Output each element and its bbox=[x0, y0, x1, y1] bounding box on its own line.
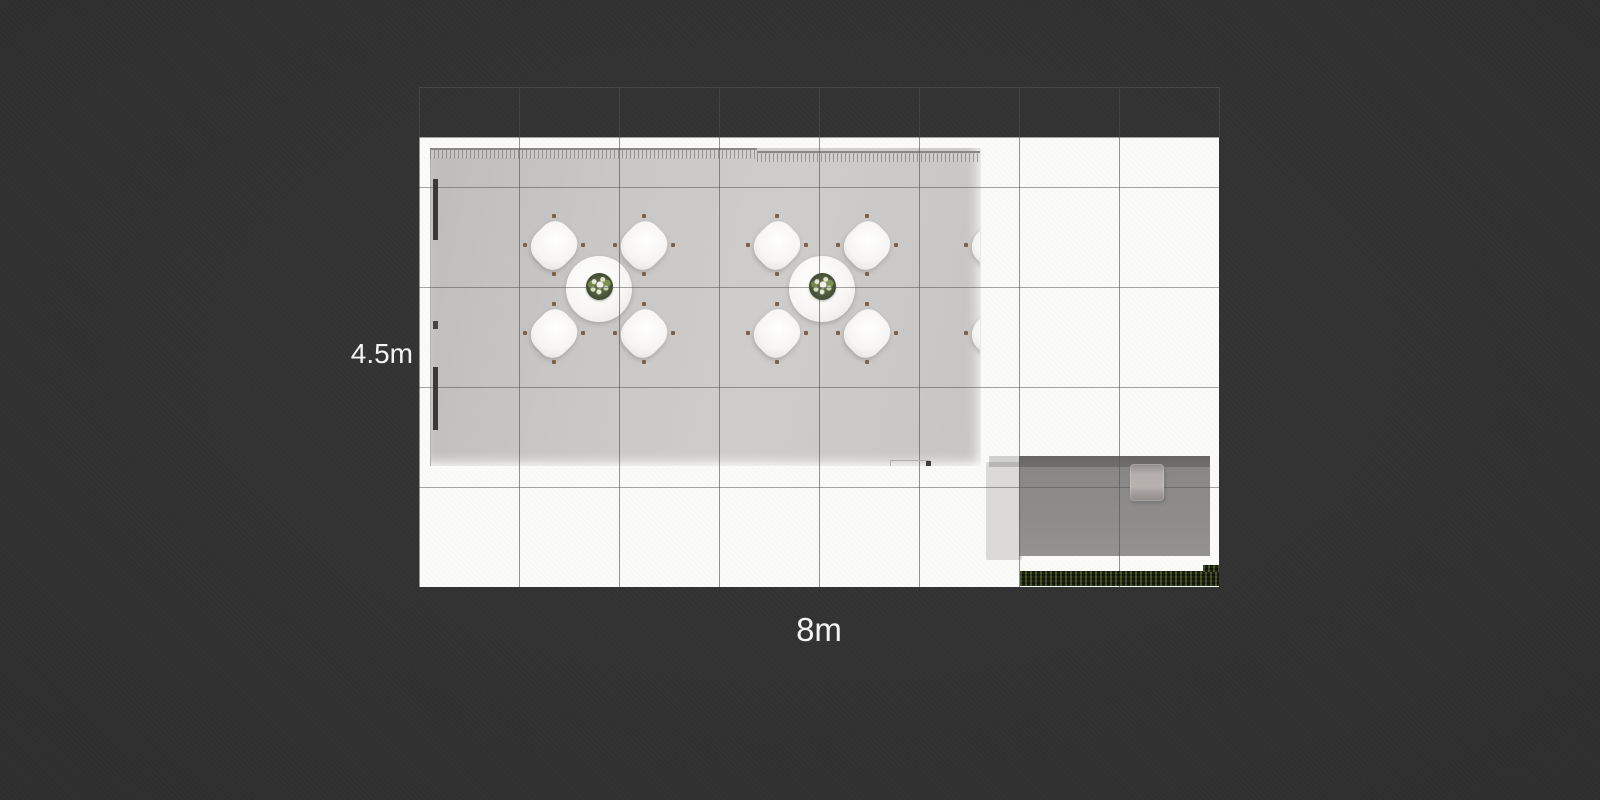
chair-seat bbox=[613, 215, 675, 277]
grid-extension-dark-area bbox=[419, 87, 1220, 138]
chair-leg-knob bbox=[671, 331, 675, 335]
floor-plan-sheet bbox=[419, 137, 1219, 587]
chair bbox=[966, 215, 980, 275]
chair bbox=[838, 215, 896, 275]
chair-seat bbox=[613, 303, 675, 365]
chair bbox=[748, 215, 806, 275]
chair-leg-knob bbox=[613, 243, 617, 247]
chair-seat bbox=[746, 215, 808, 277]
chair-seat bbox=[746, 303, 808, 365]
chair-leg-knob bbox=[581, 331, 585, 335]
height-dimension-label: 4.5m bbox=[233, 338, 413, 370]
chair-leg-knob bbox=[552, 214, 556, 218]
chair-leg-knob bbox=[775, 302, 779, 306]
render-canvas: 4.5m 8m bbox=[0, 0, 1600, 800]
floor-edge-fixture-outline bbox=[890, 460, 930, 466]
chair bbox=[966, 303, 980, 363]
chair-seat bbox=[523, 303, 585, 365]
chair bbox=[615, 303, 673, 363]
chair bbox=[748, 303, 806, 363]
chair-leg-knob bbox=[746, 243, 750, 247]
hedge-corner bbox=[1203, 565, 1219, 572]
left-wall-segment bbox=[433, 179, 438, 240]
hedge-strip bbox=[1020, 571, 1219, 586]
chair-seat bbox=[523, 215, 585, 277]
chair-leg-knob bbox=[775, 214, 779, 218]
chair-leg-knob bbox=[671, 243, 675, 247]
chair-leg-knob bbox=[865, 360, 869, 364]
left-wall-stub bbox=[433, 321, 438, 329]
chair-leg-knob bbox=[804, 243, 808, 247]
chair-leg-knob bbox=[836, 243, 840, 247]
chair-seat bbox=[836, 215, 898, 277]
chair-leg-knob bbox=[964, 243, 968, 247]
chair-leg-knob bbox=[865, 214, 869, 218]
chair-leg-knob bbox=[552, 272, 556, 276]
chair bbox=[838, 303, 896, 363]
chair-leg-knob bbox=[964, 331, 968, 335]
chair-leg-knob bbox=[775, 360, 779, 364]
chair-leg-knob bbox=[836, 331, 840, 335]
chair-leg-knob bbox=[642, 214, 646, 218]
chairs-layer bbox=[430, 148, 980, 466]
floor-edge-fixture-dot bbox=[926, 461, 931, 466]
chair bbox=[525, 303, 583, 363]
reception-desk bbox=[1019, 456, 1210, 556]
chair-seat bbox=[836, 303, 898, 365]
chair bbox=[525, 215, 583, 275]
chair bbox=[615, 215, 673, 275]
chair-leg-knob bbox=[804, 331, 808, 335]
chair-leg-knob bbox=[552, 360, 556, 364]
chair-leg-knob bbox=[642, 302, 646, 306]
chair-leg-knob bbox=[523, 243, 527, 247]
chair-leg-knob bbox=[865, 272, 869, 276]
chair-leg-knob bbox=[775, 272, 779, 276]
width-dimension-label: 8m bbox=[419, 611, 1219, 649]
chair-leg-knob bbox=[642, 360, 646, 364]
chair-leg-knob bbox=[642, 272, 646, 276]
chair-leg-knob bbox=[523, 331, 527, 335]
desk-side-panel bbox=[986, 462, 1022, 560]
chair-leg-knob bbox=[894, 243, 898, 247]
chair-leg-knob bbox=[552, 302, 556, 306]
chair-leg-knob bbox=[581, 243, 585, 247]
left-wall-segment bbox=[433, 367, 438, 430]
chair-leg-knob bbox=[746, 331, 750, 335]
chair-leg-knob bbox=[894, 331, 898, 335]
chair-leg-knob bbox=[613, 331, 617, 335]
chair-leg-knob bbox=[865, 302, 869, 306]
desk-top-edge bbox=[989, 456, 1210, 467]
